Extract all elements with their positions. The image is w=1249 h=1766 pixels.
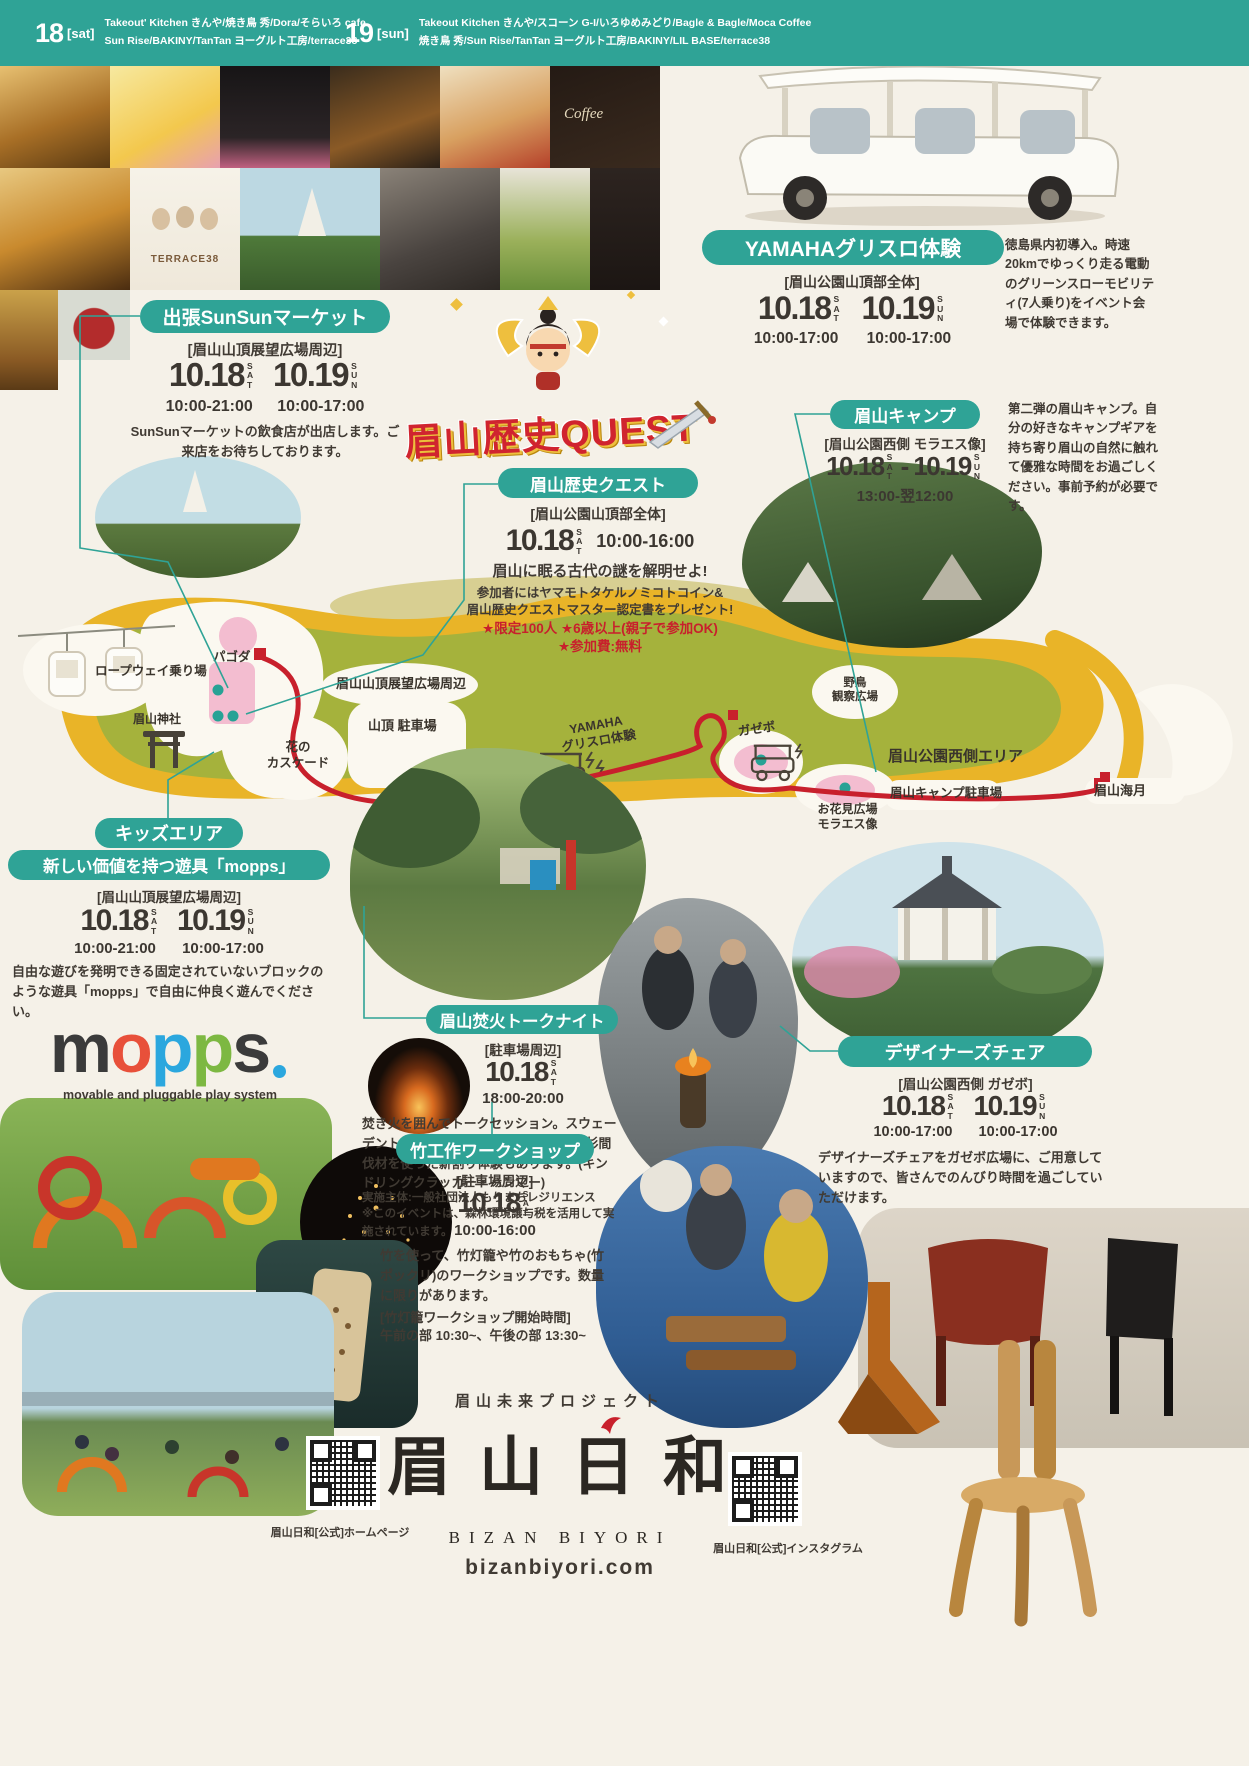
photo-chick-sweets	[110, 66, 220, 168]
qr-homepage-caption: 眉山日和[公式]ホームページ	[250, 1524, 430, 1540]
day1-vendors-line2: Sun Rise/BAKINY/TanTan ヨーグルト工房/terrace38	[105, 33, 366, 51]
qr-finder	[776, 1456, 798, 1478]
yamaha-time1: 10:00-17:00	[754, 330, 838, 347]
bonfire-day1: SAT	[551, 1059, 561, 1088]
pagoda-silhouette	[298, 188, 326, 236]
qr-code-homepage	[306, 1436, 380, 1510]
yamaha-time2: 10:00-17:00	[867, 330, 951, 347]
qr-finder	[310, 1484, 332, 1506]
gazebo-illustration	[792, 842, 1104, 1060]
chair-dates: 10.18SAT 10.19SUN	[838, 1090, 1093, 1122]
header-day1: 18 [sat] Takeout' Kitchen きんや/焼き鳥 秀/Dora…	[35, 0, 366, 66]
photo-coffee: Coffee	[550, 66, 660, 168]
bonfire-title-pill: 眉山焚火トークナイト	[426, 1005, 618, 1034]
route-gazebo-marker	[728, 710, 738, 720]
mopps-logo: m o p p s	[18, 1008, 318, 1088]
bamboo-time: 10:00-16:00	[430, 1222, 560, 1239]
photo-black-cups	[220, 66, 330, 168]
quest-character	[478, 286, 618, 406]
camp-day2: SUN	[974, 453, 984, 482]
bamboo-dates: 10.18SAT	[430, 1187, 560, 1219]
kids-time2: 10:00-17:00	[182, 940, 264, 957]
sword-icon	[648, 398, 718, 450]
terrace38-face-1	[152, 208, 170, 230]
photo-karaage	[0, 168, 130, 290]
map-label-cascade: 花の カスケード	[258, 740, 338, 771]
sunsun-day2: SUN	[351, 362, 361, 391]
kids-dates: 10.18SAT 10.19SUN	[10, 904, 328, 938]
qr-finder	[310, 1440, 332, 1462]
bamboo-note2: 午前の部 10:30~、午後の部 13:30~	[380, 1326, 612, 1346]
chair-time2: 10:00-17:00	[979, 1124, 1058, 1140]
chair-date2: 10.19	[974, 1090, 1037, 1122]
chair-day2: SUN	[1039, 1093, 1049, 1122]
qr-finder	[732, 1456, 754, 1478]
photo-dark-cup	[590, 168, 660, 290]
photo-jam-jars	[0, 66, 110, 168]
yamaha-date2: 10.19	[862, 290, 935, 327]
route-end-marker	[1100, 772, 1110, 782]
camp-title-pill: 眉山キャンプ	[830, 400, 980, 429]
map-label-west-area: 眉山公園西側エリア	[888, 748, 1023, 767]
photo-park-playground	[350, 748, 646, 1000]
sunsun-times: 10:00-21:00 10:00-17:00	[115, 398, 415, 416]
camp-date1: 10.18	[826, 451, 884, 482]
mopps-letter: p	[192, 1008, 233, 1088]
sunsun-dates: 10.18SAT 10.19SUN	[115, 356, 415, 394]
map-label-hanami: お花見広場 モラエス像	[805, 802, 890, 832]
header-day2: 19 [sun] Takeout Kitchen きんや/スコーン G-I/いろ…	[345, 0, 811, 66]
camp-date-separator: -	[901, 451, 910, 482]
quest-time: 10:00-16:00	[596, 531, 694, 552]
sparkle-icon	[659, 317, 669, 327]
wooden-chair-illustration	[938, 1330, 1108, 1630]
chair-date1: 10.18	[882, 1090, 945, 1122]
kids-location: [眉山山頂展望広場周辺]	[10, 886, 328, 906]
day1-vendors: Takeout' Kitchen きんや/焼き鳥 秀/Dora/そらいろ caf…	[105, 15, 366, 51]
camp-dates: 10.18SAT - 10.19SUN	[765, 451, 1045, 482]
photo-event-crowd	[22, 1292, 334, 1516]
kids-title-pill: キッズエリア	[95, 818, 243, 848]
sunsun-title-pill: 出張SunSunマーケット	[140, 300, 390, 333]
qr-finder	[354, 1440, 376, 1462]
photo-yamaha-cart	[700, 38, 1145, 234]
day2-tag: [sun]	[377, 26, 409, 41]
camp-location: [眉山公園西側 モラエス像]	[795, 433, 1015, 453]
quest-date1: 10.18	[506, 524, 574, 558]
sparkle-icon	[450, 298, 463, 311]
website-url: bizanbiyori.com	[430, 1552, 690, 1585]
header-strip: 18 [sat] Takeout' Kitchen きんや/焼き鳥 秀/Dora…	[0, 0, 1249, 66]
sunsun-desc: SunSunマーケットの飲食店が出店します。ご来店をお待ちしております。	[126, 422, 404, 462]
terrace38-label: TERRACE38	[130, 254, 240, 265]
map-dot-1	[213, 685, 224, 696]
mopps-letter: m	[50, 1008, 110, 1088]
yamaha-title-pill: YAMAHAグリスロ体験	[702, 230, 1004, 265]
day1-number: 18	[35, 18, 63, 49]
day2-vendors-line1: Takeout Kitchen きんや/スコーン G-I/いろゆめみどり/Bag…	[419, 15, 812, 33]
kids-time1: 10:00-21:00	[74, 940, 156, 957]
route-start-marker	[254, 648, 266, 660]
bonfire-time: 18:00-20:00	[448, 1090, 598, 1107]
sunsun-time2: 10:00-17:00	[277, 398, 364, 415]
kids-day1: SAT	[151, 908, 161, 937]
day2-vendors-line2: 焼き鳥 秀/Sun Rise/TanTan ヨーグルト工房/BAKINY/LIL…	[419, 33, 812, 51]
day2-number: 19	[345, 18, 373, 49]
kids-subtitle-pill: 新しい価値を持つ遊具「mopps」	[8, 850, 330, 880]
photo-terrace38-logo: TERRACE38	[130, 168, 240, 290]
quest-day1: SAT	[576, 528, 586, 557]
quest-note2: ★参加費:無料	[430, 637, 770, 658]
terrace38-face-2	[176, 206, 194, 228]
photo-sunsun-market	[95, 456, 301, 578]
bamboo-desc: 竹を使って、竹灯籠や竹のおもちゃ(竹ポックリ)のワークショップです。数量に限りが…	[380, 1246, 612, 1306]
yamaha-date1: 10.18	[758, 290, 831, 327]
map-label-summit-plaza: 眉山山頂展望広場周辺	[336, 676, 466, 692]
chair-desc: デザイナーズチェアをガゼボ広場に、ご用意していますので、皆さんでのんびり時間を過…	[818, 1148, 1114, 1208]
mopps-letter: p	[151, 1008, 192, 1088]
bizan-biyori-logo: 眉 山 日 和	[370, 1416, 750, 1508]
kids-times: 10:00-21:00 10:00-17:00	[10, 940, 328, 957]
map-dot-gazebo	[756, 755, 767, 766]
qr-instagram-caption: 眉山日和[公式]インスタグラム	[698, 1540, 878, 1556]
quest-desc2: 眉山歴史クエストマスター認定書をプレゼント!	[430, 601, 770, 620]
map-label-shrine: 眉山神社	[133, 712, 181, 727]
chair-times: 10:00-17:00 10:00-17:00	[828, 1124, 1103, 1140]
bizan-biyori-en: BIZAN BIYORI	[430, 1528, 690, 1548]
kids-date1: 10.18	[80, 904, 148, 938]
day2-vendors: Takeout Kitchen きんや/スコーン G-I/いろゆめみどり/Bag…	[419, 15, 812, 51]
day1-tag: [sat]	[67, 26, 94, 41]
camp-desc: 第二弾の眉山キャンプ。自分の好きなキャンプギアを持ち寄り眉山の自然に触れて優雅な…	[1008, 400, 1160, 516]
bonfire-dates: 10.18SAT	[448, 1056, 598, 1088]
map-label-parking: 山頂 駐車場	[368, 718, 437, 734]
photo-hotdog	[440, 66, 550, 168]
photo-firepit-people	[598, 898, 798, 1188]
mopps-tagline: movable and pluggable play system	[10, 1086, 330, 1105]
qr-modules	[732, 1456, 798, 1522]
park-illustration	[350, 748, 646, 1000]
flyer-page: 18 [sat] Takeout' Kitchen きんや/焼き鳥 秀/Dora…	[0, 0, 1249, 1766]
yamaha-times: 10:00-17:00 10:00-17:00	[700, 330, 1005, 348]
camp-date2: 10.19	[913, 451, 971, 482]
coffee-script-label: Coffee	[564, 106, 603, 123]
qr-finder	[732, 1500, 754, 1522]
chair-day1: SAT	[948, 1093, 958, 1122]
bamboo-day1: SAT	[523, 1190, 533, 1219]
firepit-illustration	[598, 898, 798, 1188]
bonfire-date1: 10.18	[485, 1056, 548, 1088]
photo-summit-view	[240, 168, 380, 290]
photo-grill-skewers	[380, 168, 500, 290]
map-dot-3	[228, 711, 239, 722]
kids-day2: SUN	[248, 908, 258, 937]
red-bird-mark	[598, 1412, 624, 1438]
map-label-pagoda: パゴダ	[213, 650, 251, 666]
qr-modules	[310, 1440, 376, 1506]
sparkle-icon	[627, 291, 635, 299]
map-dot-2	[213, 711, 224, 722]
map-label-camp-parking: 眉山キャンプ駐車場	[890, 786, 1002, 802]
yamaha-location: [眉山公園山頂部全体]	[742, 272, 962, 292]
camp-day1: SAT	[887, 453, 897, 482]
mopps-dot	[273, 1065, 286, 1078]
photo-veggie-skewers	[500, 168, 590, 290]
day1-vendors-line1: Takeout' Kitchen きんや/焼き鳥 秀/Dora/そらいろ caf…	[105, 15, 366, 33]
sunsun-time1: 10:00-21:00	[166, 398, 253, 415]
yamaha-day2: SUN	[937, 295, 947, 324]
crowd-illustration	[22, 1292, 334, 1516]
photo-jam-shelf	[0, 290, 58, 390]
quest-location: [眉山公園山頂部全体]	[468, 504, 728, 524]
footer-project-name: 眉山未来プロジェクト	[430, 1390, 690, 1413]
yamaha-desc: 徳島県内初導入。時速20kmでゆっくり走る電動のグリーンスローモビリティ(7人乗…	[1005, 236, 1157, 333]
mopps-letter: s	[232, 1008, 269, 1088]
sunsun-date1: 10.18	[169, 356, 244, 394]
tent-2	[922, 554, 982, 600]
mopps-letter: o	[110, 1008, 151, 1088]
quest-title-pill: 眉山歴史クエスト	[498, 468, 698, 498]
bamboo-title-pill: 竹工作ワークショップ	[396, 1134, 594, 1164]
bamboo-date1: 10.18	[457, 1187, 520, 1219]
yamaha-day1: SAT	[834, 295, 844, 324]
chair-time1: 10:00-17:00	[873, 1124, 952, 1140]
photo-gazebo	[792, 842, 1104, 1060]
kids-date2: 10.19	[177, 904, 245, 938]
sunsun-day1: SAT	[247, 362, 257, 391]
yamaha-dates: 10.18SAT 10.19SUN	[700, 290, 1005, 327]
terrace38-face-3	[200, 208, 218, 230]
quest-lead: 眉山に眠る古代の謎を解明せよ!	[455, 560, 745, 583]
chair-title-pill: デザイナーズチェア	[838, 1036, 1092, 1067]
tent-1	[782, 562, 834, 602]
qr-code-instagram	[728, 1452, 802, 1526]
photo-fried-skewer	[330, 66, 440, 168]
map-label-ropeway: ロープウェイ乗り場	[95, 664, 207, 680]
golf-cart-illustration	[700, 38, 1145, 234]
map-label-bird: 野鳥 観察広場	[815, 676, 895, 705]
sunsun-date2: 10.19	[273, 356, 348, 394]
map-label-kaigetsu: 眉山海月	[1094, 783, 1146, 799]
camp-time: 13:00-翌12:00	[765, 485, 1045, 506]
sunsun-pagoda-silhouette	[183, 470, 207, 512]
quest-dates: 10.18SAT 10:00-16:00	[455, 524, 745, 558]
